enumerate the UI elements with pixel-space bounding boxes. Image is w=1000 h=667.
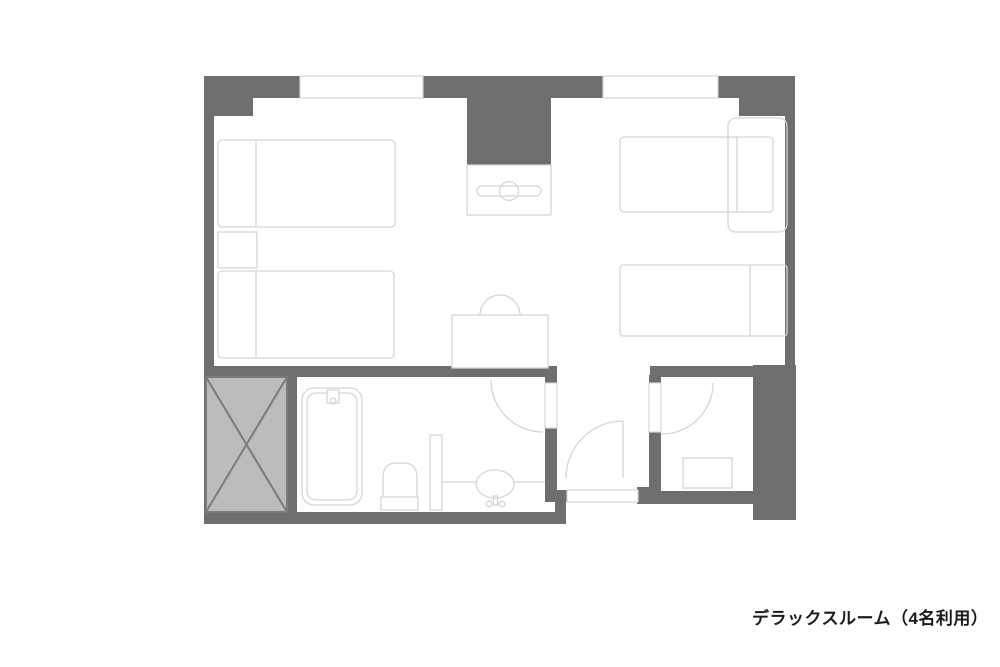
bathtub-outer (302, 388, 362, 505)
window-left (300, 76, 423, 98)
wall-toilet-left-upper (649, 375, 661, 383)
wall-hall-left-upper (545, 375, 557, 383)
nightstand (218, 232, 257, 268)
toilet-room-door-leaf (649, 383, 661, 432)
wall-top-right (718, 76, 795, 98)
floorplan-image: デラックスルーム（4名利用） (0, 0, 1000, 667)
toilet-tank (381, 497, 418, 510)
wall-right-block (753, 365, 796, 520)
bed-right-1 (620, 137, 773, 212)
bed-right-2 (620, 265, 787, 336)
toilet-room-door-arc (662, 383, 713, 434)
bathtub-faucet (327, 390, 339, 403)
bathroom-door-leaf (545, 383, 557, 428)
wall-bottom-right (637, 491, 760, 504)
twin-bed-left-2 (218, 271, 394, 358)
wall-toilet-left-lower (649, 432, 661, 492)
partition (430, 435, 442, 510)
floorplan-svg (0, 0, 1000, 667)
wall-bottom-left (204, 512, 566, 524)
toilet-bowl (383, 463, 417, 497)
wall-top-left (204, 76, 300, 98)
elevator-shaft (206, 377, 287, 512)
tv-counter (467, 165, 551, 215)
window-right (603, 76, 718, 98)
toilet-room-cabinet (683, 458, 732, 488)
bathtub-inner (307, 393, 357, 500)
entrance-threshold (567, 490, 638, 502)
twin-bed-left-1 (218, 140, 395, 227)
entrance-door-arc (566, 421, 623, 478)
desk (452, 315, 548, 368)
basin-faucet-right-knob (499, 501, 505, 507)
wall-pillar (467, 97, 551, 165)
wall-shaft-right (287, 366, 297, 524)
chair (480, 295, 520, 315)
room-caption: デラックスルーム（4名利用） (752, 604, 988, 629)
furniture (218, 118, 787, 510)
basin-faucet-left-knob (486, 501, 492, 507)
wash-basin (476, 470, 514, 498)
bathroom-door-arc (491, 380, 543, 432)
wall-hall-left-lower (545, 428, 557, 492)
wall-top-center (423, 76, 603, 98)
